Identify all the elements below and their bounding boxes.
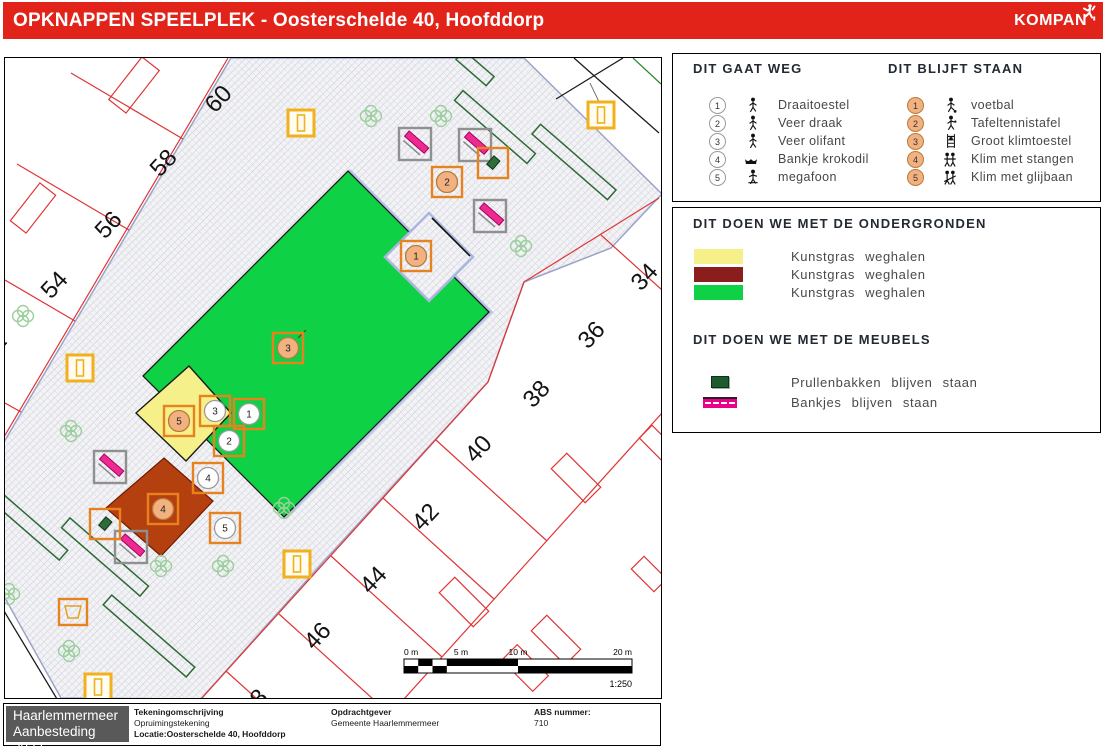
legend-label: Klim met stangen [971,152,1074,166]
football-icon [944,97,958,113]
svg-text:34: 34 [626,258,661,296]
legend-label: voetbal [971,98,1014,112]
abs-number-header: ABS nummer: [534,707,591,718]
svg-text:1: 1 [246,410,252,421]
legend-ondergronden-title: DIT DOEN WE MET DE ONDERGRONDEN [693,216,987,231]
surface-swatch-green [694,285,743,300]
kompan-logo-text: KOMPAN [1014,12,1087,30]
abs-number-column: ABS nummer: 710 [534,707,591,729]
marker-number: 3 [907,133,924,150]
scale-ratio: 1:250 [609,679,632,689]
client-column: Opdrachtgever Gemeente Haarlemmermeer [331,707,439,729]
svg-text:4: 4 [205,474,211,485]
legend-meubels-title: DIT DOEN WE MET DE MEUBELS [693,332,931,347]
climb-bars-icon [943,151,957,167]
legend-blijft-title: DIT BLIJFT STAAN [888,61,1023,76]
svg-text:5: 5 [222,524,228,535]
drawing-description-header: Tekeningomschrijving [134,707,286,718]
drawing-description-column: Tekeningomschrijving Opruimingstekening … [134,707,286,740]
svg-text:20 m: 20 m [613,647,632,657]
legend-label: Tafeltennistafel [971,116,1061,130]
furniture-label: Prullenbakken blijven staan [791,375,977,390]
marker-number: 2 [907,115,924,132]
svg-text:8: 8 [245,684,274,698]
client-name: Gemeente Haarlemmermeer [331,718,439,729]
svg-text:0 m: 0 m [404,647,418,657]
svg-text:46: 46 [299,617,337,655]
marker-number: 5 [907,169,924,186]
surface-label: Kunstgras weghalen [791,249,926,264]
kompan-logo: KOMPAN [1014,12,1093,30]
svg-text:3: 3 [212,407,218,418]
table-tennis-icon [944,115,958,131]
svg-text:40: 40 [460,430,498,468]
client-header: Opdrachtgever [331,707,439,718]
surface-label: Kunstgras weghalen [791,267,926,282]
svg-text:2: 2 [226,437,232,448]
svg-text:2: 2 [5,328,12,356]
drawing-sheet: OPKNAPPEN SPEELPLEK - Oosterschelde 40, … [0,0,1106,753]
svg-text:4: 4 [160,505,166,516]
svg-text:42: 42 [407,498,445,536]
svg-text:5: 5 [176,417,182,428]
location: Locatie:Oosterschelde 40, Hoofddorp [134,729,286,740]
abs-number-value: 710 [534,718,591,729]
legend-label: Klim met glijbaan [971,170,1073,184]
legend-row: 3 Groot klimtoestel [673,133,1102,152]
svg-text:2: 2 [444,178,450,189]
svg-text:54: 54 [36,266,74,304]
surface-swatch-darkred [694,267,743,282]
svg-text:44: 44 [355,561,393,599]
legend-equipment: DIT GAAT WEG DIT BLIJFT STAAN 1 Draaitoe… [672,53,1101,202]
marker-number: 1 [907,97,924,114]
legend-surfaces-furniture: DIT DOEN WE MET DE ONDERGRONDEN Kunstgra… [672,207,1101,433]
legend-row: 1 voetbal [673,97,1102,116]
project-name-line1: Haarlemmermeer [13,708,129,724]
title-block: Haarlemmermeer Aanbesteding 2023 Tekenin… [3,703,661,746]
legend-weg-title: DIT GAAT WEG [693,61,802,76]
drawing-type: Opruimingstekening [134,718,286,729]
site-plan-frame: 1 2 3 4 5 1 2 3 4 5 60 58 56 54 2 34 36 … [4,57,662,699]
project-name-box: Haarlemmermeer Aanbesteding 2023 [6,706,129,742]
legend-label: Groot klimtoestel [971,134,1072,148]
header-bar: OPKNAPPEN SPEELPLEK - Oosterschelde 40, … [3,2,1103,39]
bench-icon [703,397,737,408]
svg-text:5 m: 5 m [454,647,468,657]
green-boundary-line [633,58,661,84]
svg-text:38: 38 [518,375,556,413]
page-title: OPKNAPPEN SPEELPLEK - Oosterschelde 40, … [13,10,544,32]
legend-row: 2 Tafeltennistafel [673,115,1102,134]
svg-text:36: 36 [573,316,611,354]
jumping-person-icon [1081,3,1097,21]
svg-text:10 m: 10 m [509,647,528,657]
legend-row: 4 Klim met stangen [673,151,1102,170]
climbing-frame-icon [944,133,958,149]
marker-number: 4 [907,151,924,168]
legend-row: 5 Klim met glijbaan [673,169,1102,188]
climb-slide-icon [943,169,957,185]
surface-label: Kunstgras weghalen [791,285,926,300]
surface-swatch-yellow [694,249,743,264]
trash-bin-icon [711,376,729,388]
project-name-line2: Aanbesteding 2023 [13,724,129,753]
site-plan-map: 1 2 3 4 5 1 2 3 4 5 60 58 56 54 2 34 36 … [5,58,661,698]
furniture-label: Bankjes blijven staan [791,395,938,410]
svg-text:3: 3 [285,344,291,355]
svg-text:1: 1 [413,252,419,263]
